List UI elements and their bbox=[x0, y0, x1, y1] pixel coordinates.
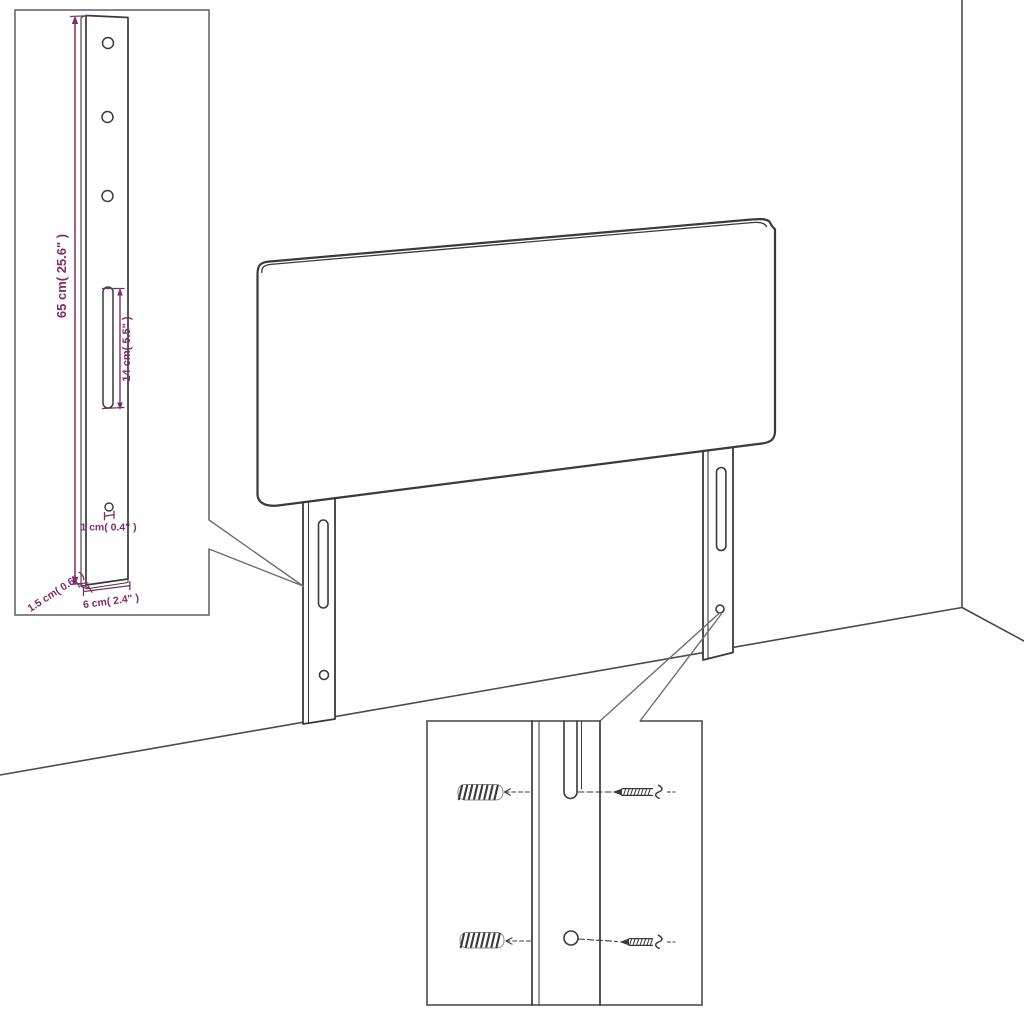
hole-label: 1 cm( 0.4" ) bbox=[80, 522, 136, 534]
dimension-thickness: 1.5 cm( 0.6" ) bbox=[25, 569, 92, 615]
leg-detail-callout bbox=[209, 520, 303, 586]
dimension-height: 65 cm( 25.6" ) bbox=[54, 16, 88, 586]
width-label: 6 cm( 2.4" ) bbox=[82, 592, 139, 611]
headboard-panel bbox=[258, 219, 776, 506]
screw-head bbox=[656, 935, 662, 948]
leg-detail-drawing bbox=[81, 16, 128, 589]
headboard-leg-left bbox=[303, 497, 335, 725]
strip-slot bbox=[564, 721, 577, 799]
mounting-detail-inset bbox=[427, 721, 702, 1005]
floor-line-right bbox=[962, 608, 1024, 642]
wall-plug-lower bbox=[460, 933, 531, 949]
plug-ribs bbox=[461, 933, 500, 947]
height-label: 65 cm( 25.6" ) bbox=[54, 234, 69, 318]
screw-tip bbox=[613, 789, 623, 796]
assembly-diagram-page: 65 cm( 25.6" ) 14 cm( 5.5" ) 1 cm( 0.4" … bbox=[0, 0, 1024, 1024]
screw-threads bbox=[630, 939, 653, 944]
leg-detail-inset: 65 cm( 25.6" ) 14 cm( 5.5" ) 1 cm( 0.4" … bbox=[15, 10, 209, 615]
dimension-width: 6 cm( 2.4" ) bbox=[82, 582, 139, 612]
screw-threads bbox=[624, 789, 650, 794]
screw-upper bbox=[578, 785, 675, 798]
plug-ribs bbox=[459, 785, 498, 799]
screw-tip bbox=[620, 939, 630, 946]
callout-lines bbox=[209, 520, 721, 721]
screw-leader bbox=[579, 939, 618, 942]
wall-plug-upper bbox=[458, 785, 531, 801]
thickness-label: 1.5 cm( 0.6" ) bbox=[25, 569, 86, 615]
panel-outline bbox=[258, 219, 776, 506]
screw-lower bbox=[579, 935, 676, 948]
strip-hole bbox=[564, 931, 578, 945]
detail-leg-body bbox=[86, 16, 128, 586]
mounting-leg-strip bbox=[532, 721, 600, 1005]
headboard-leg-right bbox=[703, 446, 733, 660]
slot-label: 14 cm( 5.5" ) bbox=[121, 316, 133, 381]
screw-head bbox=[656, 785, 662, 798]
floor-line-left bbox=[0, 608, 962, 776]
headboard bbox=[258, 219, 776, 724]
headboard-assembly-diagram: 65 cm( 25.6" ) 14 cm( 5.5" ) 1 cm( 0.4" … bbox=[0, 0, 1024, 1024]
